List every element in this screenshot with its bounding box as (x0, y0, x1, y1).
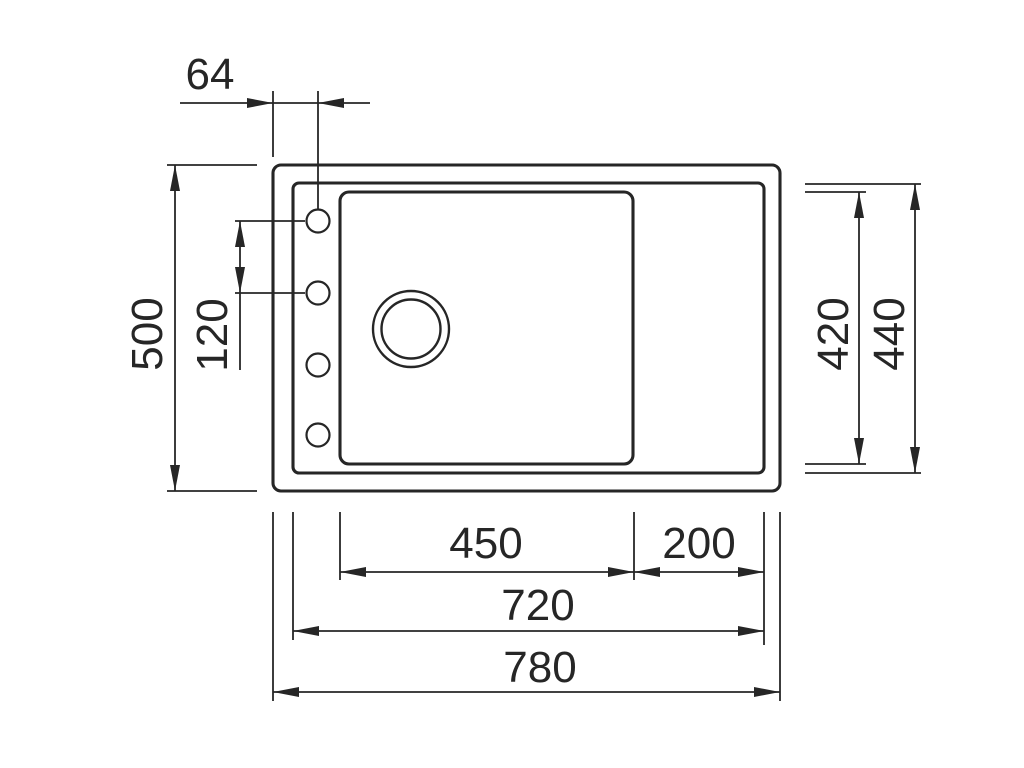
faucet-hole-4 (307, 424, 330, 447)
dim-label-500: 500 (123, 297, 172, 370)
arrowhead-left (318, 98, 344, 108)
arrowhead-down (854, 438, 864, 464)
arrowhead-down (235, 267, 245, 293)
dimension-faucet-hole-spacing: 120 (188, 221, 305, 372)
dim-label-420: 420 (809, 297, 858, 370)
dim-label-120: 120 (188, 298, 237, 371)
arrowhead-down (170, 465, 180, 491)
arrowhead-down (910, 447, 920, 473)
arrowhead-up (235, 221, 245, 247)
arrowhead-right (738, 626, 764, 636)
sink-dimension-drawing: 64 500 120 420 (0, 0, 1024, 768)
dimension-bowl-depth: 420 (805, 192, 866, 464)
sink-bowl (340, 192, 633, 464)
dim-label-64: 64 (186, 50, 235, 99)
sink-inner-rim (293, 183, 764, 473)
faucet-hole-1 (307, 210, 330, 233)
drain-outer-ring (373, 291, 449, 367)
dim-label-720: 720 (501, 581, 574, 630)
arrowhead-left (293, 626, 319, 636)
arrowhead-right (608, 567, 634, 577)
arrowhead-right (247, 98, 273, 108)
sink-outer-edge (273, 165, 780, 491)
dimension-faucet-hole-offset: 64 (180, 50, 370, 209)
dim-label-450: 450 (449, 519, 522, 568)
faucet-hole-3 (307, 354, 330, 377)
arrowhead-up (910, 184, 920, 210)
arrowhead-left (340, 567, 366, 577)
dim-label-200: 200 (662, 519, 735, 568)
faucet-hole-2 (307, 282, 330, 305)
dimension-drainboard-width: 200 (634, 512, 764, 645)
arrowhead-left (273, 687, 299, 697)
technical-drawing-canvas: 64 500 120 420 (0, 0, 1024, 768)
dim-label-440: 440 (865, 297, 914, 370)
drain-inner-ring (382, 300, 441, 359)
arrowhead-right (738, 567, 764, 577)
arrowhead-up (170, 165, 180, 191)
arrowhead-right (754, 687, 780, 697)
dim-label-780: 780 (503, 643, 576, 692)
sink-plan-view (273, 165, 780, 491)
dimension-bowl-width: 450 (340, 512, 634, 580)
arrowhead-up (854, 192, 864, 218)
arrowhead-left (634, 567, 660, 577)
